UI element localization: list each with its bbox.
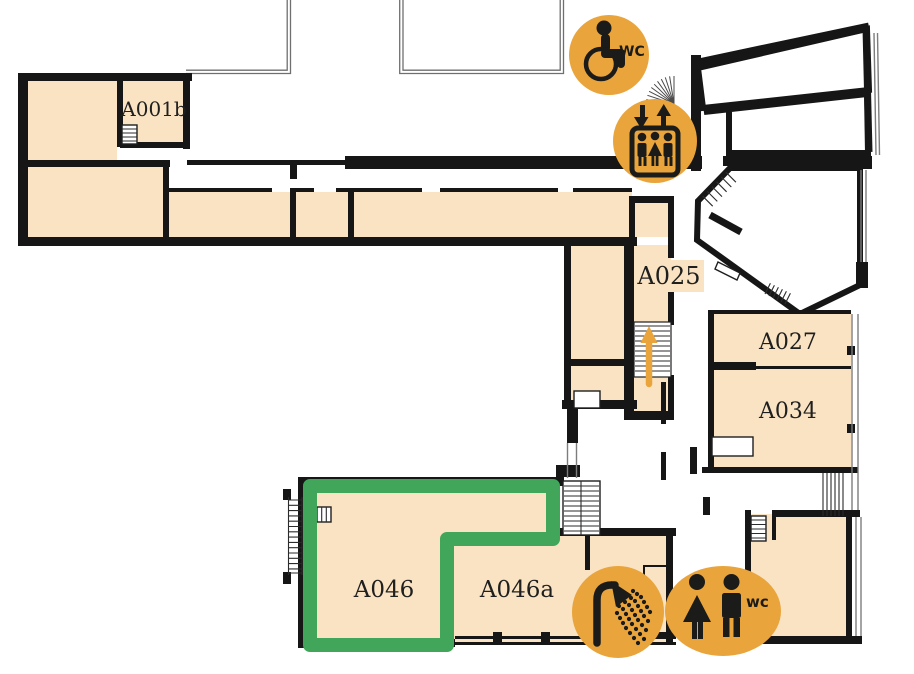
fixture-a046-ladder bbox=[317, 507, 331, 522]
room-label-a046[interactable]: A046 bbox=[353, 577, 415, 603]
stairs-a001b bbox=[122, 125, 137, 144]
unmapped-building-outline bbox=[186, 0, 564, 74]
elevator-icon-bg bbox=[613, 99, 697, 183]
stairs-a025 bbox=[634, 322, 671, 377]
stairs-vertical-east bbox=[823, 473, 843, 516]
room-left-lower bbox=[28, 167, 163, 237]
room-mid-left bbox=[570, 245, 625, 407]
room-pentagon bbox=[697, 168, 860, 314]
room-a025-stub bbox=[633, 203, 671, 237]
corridor-west-wing bbox=[169, 192, 632, 237]
shower-icon[interactable] bbox=[572, 566, 664, 658]
staircase-a046a bbox=[563, 481, 600, 535]
floor-plan-svg: A001b A025 A027 A034 A046 A046a WC bbox=[0, 0, 914, 674]
stairs-bottom-right-notch bbox=[751, 516, 766, 541]
room-label-a034[interactable]: A034 bbox=[758, 399, 817, 424]
elevator-icon[interactable] bbox=[613, 99, 697, 183]
fixture-mid-wing bbox=[574, 391, 600, 408]
room-label-a025[interactable]: A025 bbox=[636, 262, 700, 290]
toilets-label: wc bbox=[746, 593, 769, 611]
room-label-a001b[interactable]: A001b bbox=[120, 97, 186, 121]
accessible-wc-icon[interactable]: WC bbox=[569, 15, 649, 95]
room-label-a046a[interactable]: A046a bbox=[479, 577, 555, 603]
floor-plan-canvas: A001b A025 A027 A034 A046 A046a WC bbox=[0, 0, 914, 674]
accessible-wc-label: WC bbox=[619, 44, 645, 60]
room-topleft bbox=[28, 81, 117, 161]
toilets-icon[interactable]: wc bbox=[665, 566, 781, 656]
room-label-a027[interactable]: A027 bbox=[758, 330, 817, 355]
shaft-a034 bbox=[712, 437, 753, 456]
